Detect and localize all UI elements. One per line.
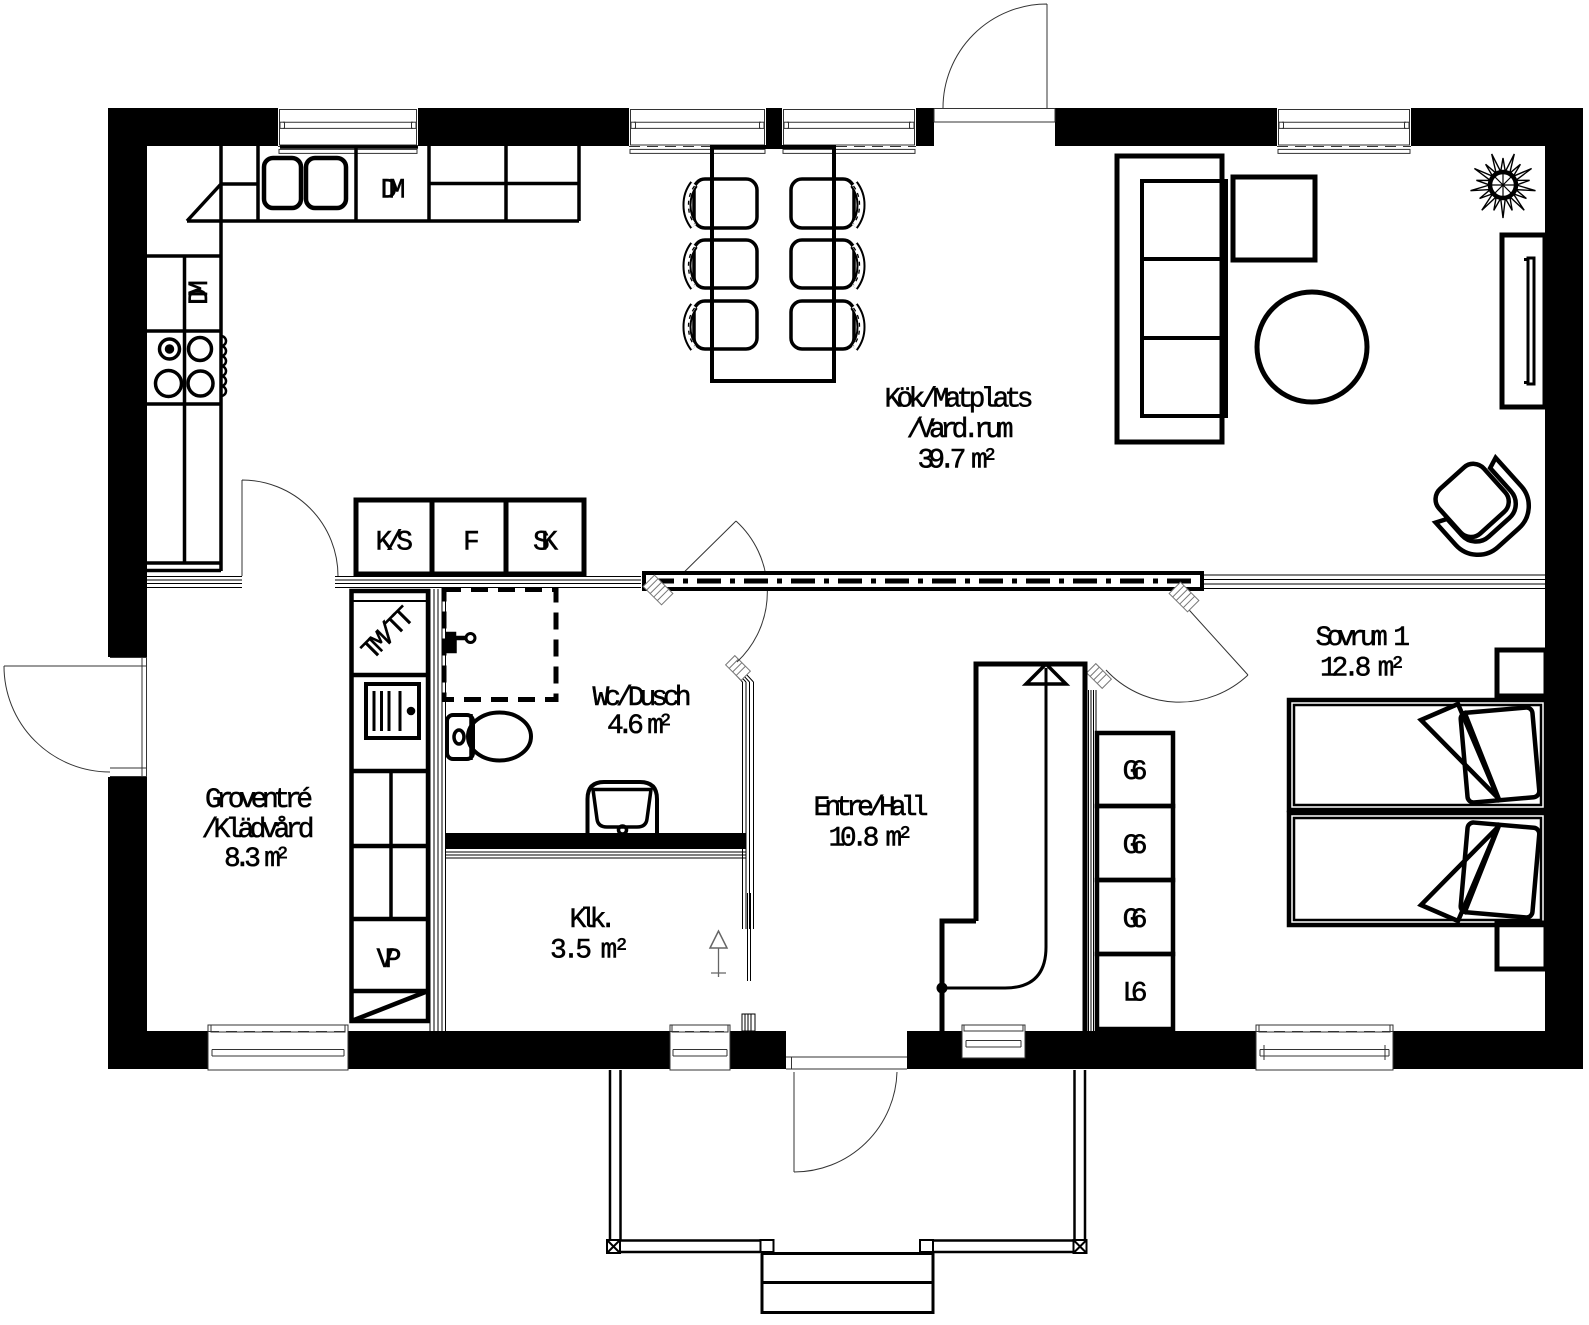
svg-text:K/S: K/S (376, 528, 414, 559)
svg-text:3.5 m²: 3.5 m² (550, 936, 630, 967)
svg-text:SK: SK (533, 528, 558, 559)
svg-text:G6: G6 (1123, 831, 1148, 862)
svg-text:4.6 m²: 4.6 m² (607, 711, 674, 742)
svg-text:12.8 m²: 12.8 m² (1320, 654, 1406, 685)
svg-text:Kök/Matplats: Kök/Matplats (885, 385, 1034, 416)
svg-text:G6: G6 (1123, 757, 1148, 788)
svg-text:VP: VP (377, 945, 402, 976)
svg-text:10.8 m²: 10.8 m² (829, 824, 914, 855)
svg-text:F: F (463, 528, 480, 559)
svg-text:Groventré: Groventré (205, 785, 313, 816)
svg-text:G6: G6 (1123, 905, 1148, 936)
svg-text:DM: DM (381, 176, 406, 207)
svg-text:DM: DM (185, 280, 216, 305)
svg-text:/Vard.rum: /Vard.rum (907, 415, 1014, 446)
svg-text:Klk.: Klk. (570, 905, 617, 936)
svg-text:/Klädvård: /Klädvård (202, 815, 315, 846)
svg-text:Entre/Hall: Entre/Hall (814, 793, 929, 824)
svg-text:Sovrum 1: Sovrum 1 (1316, 623, 1411, 654)
svg-text:L6: L6 (1123, 979, 1148, 1010)
svg-text:Wc/Dusch: Wc/Dusch (593, 683, 692, 714)
svg-text:8.3 m²: 8.3 m² (224, 844, 291, 875)
svg-text:39.7 m²: 39.7 m² (918, 446, 999, 477)
